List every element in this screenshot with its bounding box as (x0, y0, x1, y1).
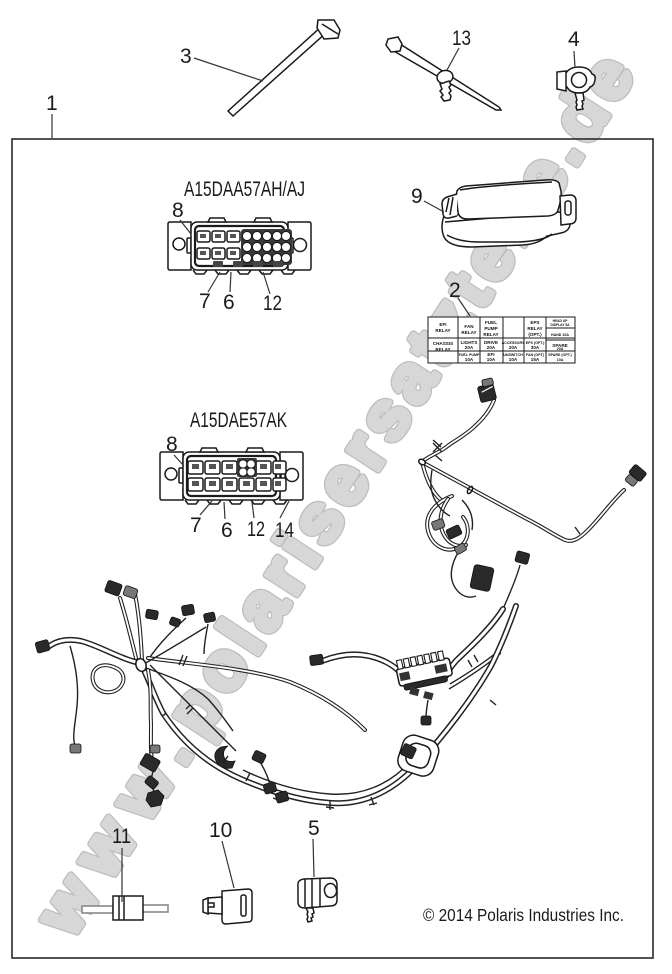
svg-text:FAN: FAN (464, 324, 474, 329)
svg-text:EFI: EFI (439, 322, 446, 327)
svg-text:PUMP: PUMP (484, 326, 497, 331)
svg-text:RELAY: RELAY (483, 332, 498, 337)
svg-text:10A: 10A (509, 357, 518, 362)
svg-text:RELAY: RELAY (527, 326, 542, 331)
svg-text:8: 8 (166, 433, 178, 456)
svg-text:A15DAA57AH/AJ: A15DAA57AH/AJ (184, 178, 305, 201)
svg-text:RELAY: RELAY (461, 330, 476, 335)
svg-text:13: 13 (452, 27, 471, 50)
svg-text:8: 8 (172, 199, 184, 222)
svg-text:FUEL: FUEL (485, 320, 497, 325)
svg-text:20A: 20A (487, 345, 496, 350)
svg-text:EPS: EPS (530, 320, 539, 325)
svg-text:A15DAE57AK: A15DAE57AK (190, 409, 287, 432)
svg-text:14: 14 (275, 519, 294, 542)
svg-text:RELAY: RELAY (435, 347, 450, 352)
svg-text:7: 7 (199, 290, 211, 313)
svg-text:11: 11 (112, 825, 131, 848)
svg-text:10: 10 (209, 819, 232, 842)
svg-text:30A: 30A (531, 345, 540, 350)
svg-text:9: 9 (411, 185, 423, 208)
svg-text:20A: 20A (465, 345, 474, 350)
svg-text:10A: 10A (465, 357, 474, 362)
svg-text:15A: 15A (531, 357, 540, 362)
svg-text:4: 4 (568, 28, 580, 51)
svg-text:SPARE (OPT.): SPARE (OPT.) (548, 353, 572, 357)
svg-text:RELAY: RELAY (435, 328, 450, 333)
svg-text:6: 6 (223, 291, 235, 314)
svg-text:20A: 20A (557, 347, 564, 351)
svg-text:20A: 20A (509, 345, 518, 350)
svg-text:DISPLAY 5A: DISPLAY 5A (550, 323, 570, 327)
svg-text:12: 12 (263, 292, 282, 315)
svg-text:(OPT.): (OPT.) (528, 332, 542, 337)
svg-text:3: 3 (180, 45, 192, 68)
svg-text:1: 1 (46, 92, 58, 115)
svg-text:7: 7 (190, 514, 202, 537)
svg-text:HAND 10A: HAND 10A (551, 333, 569, 337)
svg-text:6: 6 (221, 519, 233, 542)
svg-text:© 2014 Polaris Industries Inc.: © 2014 Polaris Industries Inc. (423, 905, 624, 925)
svg-text:12: 12 (247, 518, 265, 541)
svg-text:10A: 10A (487, 357, 496, 362)
svg-text:10A: 10A (557, 358, 564, 362)
svg-text:5: 5 (308, 817, 320, 840)
svg-text:CHASSIS: CHASSIS (433, 341, 453, 346)
